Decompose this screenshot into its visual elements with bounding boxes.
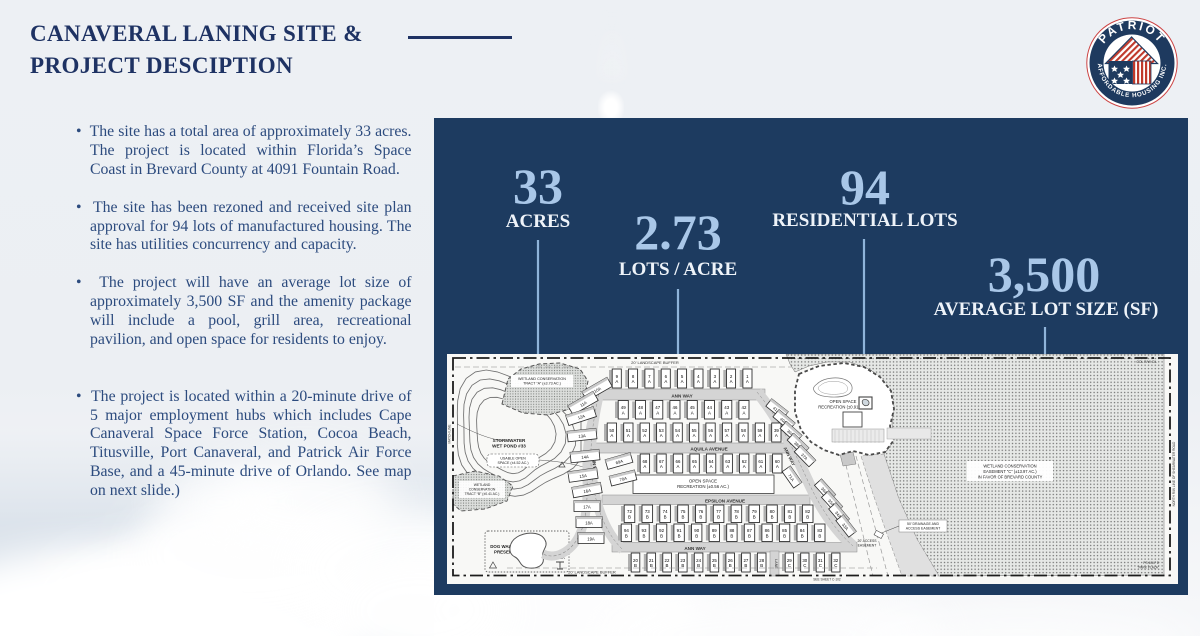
svg-text:B: B: [760, 563, 763, 568]
svg-text:B: B: [713, 533, 716, 538]
svg-text:TRACT “A” (±3.73 AC.): TRACT “A” (±3.73 AC.): [523, 382, 561, 386]
svg-text:B: B: [678, 533, 681, 538]
svg-text:B: B: [699, 514, 702, 519]
svg-text:A: A: [713, 379, 716, 384]
svg-text:C: C: [803, 563, 806, 568]
svg-text:A: A: [648, 379, 651, 384]
svg-text:A: A: [674, 410, 677, 415]
svg-text:45: 45: [690, 405, 695, 410]
svg-text:13A: 13A: [578, 433, 586, 439]
svg-text:A: A: [691, 410, 694, 415]
svg-text:ANN WAY: ANN WAY: [684, 546, 705, 551]
svg-text:B: B: [666, 563, 669, 568]
svg-text:WET POND #33: WET POND #33: [492, 444, 526, 449]
svg-text:A: A: [693, 433, 696, 438]
svg-text:EASEMENT “C” (±13.97 AC.): EASEMENT “C” (±13.97 AC.): [983, 469, 1037, 474]
svg-text:48: 48: [638, 405, 643, 410]
svg-text:MATCH LINE: MATCH LINE: [448, 424, 452, 443]
svg-text:B: B: [660, 533, 663, 538]
svg-text:A: A: [681, 379, 684, 384]
svg-text:20’ LANDSCAPE BUFFER: 20’ LANDSCAPE BUFFER: [631, 360, 679, 365]
svg-text:C: C: [788, 563, 791, 568]
svg-text:B: B: [682, 514, 685, 519]
svg-text:19A: 19A: [587, 537, 595, 542]
svg-text:49: 49: [621, 405, 626, 410]
svg-text:A: A: [664, 379, 667, 384]
svg-text:44: 44: [707, 405, 712, 410]
svg-text:NORTH R/W LINE OF SHEARWATER R: NORTH R/W LINE OF SHEARWATER ROAD: [1172, 441, 1176, 506]
svg-text:B: B: [771, 514, 774, 519]
svg-text:50’ DRAINAGE AND: 50’ DRAINAGE AND: [907, 522, 939, 526]
svg-text:A: A: [660, 433, 663, 438]
svg-text:OPEN SPACE: OPEN SPACE: [689, 479, 717, 484]
svg-text:A: A: [632, 379, 635, 384]
svg-text:15A: 15A: [579, 473, 587, 479]
svg-text:A: A: [710, 464, 713, 469]
svg-text:B: B: [643, 533, 646, 538]
svg-text:A: A: [759, 464, 762, 469]
svg-text:SPACE (±4.52 AC.): SPACE (±4.52 AC.): [497, 461, 528, 465]
svg-text:A: A: [697, 379, 700, 384]
svg-text:20’ LANDSCAPE BUFFER: 20’ LANDSCAPE BUFFER: [568, 570, 616, 575]
svg-text:A: A: [627, 433, 630, 438]
svg-text:A: A: [743, 410, 746, 415]
svg-text:B: B: [766, 533, 769, 538]
svg-text:A: A: [730, 379, 733, 384]
svg-text:“PARK PLAZA”: “PARK PLAZA”: [1137, 566, 1159, 570]
svg-text:A: A: [776, 464, 779, 469]
svg-text:A: A: [775, 433, 778, 438]
svg-text:USABLE OPEN: USABLE OPEN: [500, 457, 526, 461]
svg-text:A: A: [726, 464, 729, 469]
svg-text:B: B: [717, 514, 720, 519]
svg-text:A: A: [639, 410, 642, 415]
svg-text:ANN WAY: ANN WAY: [671, 394, 692, 399]
svg-text:OPEN SPACE: OPEN SPACE: [830, 399, 857, 404]
svg-text:STORMWATER: STORMWATER: [493, 438, 526, 443]
svg-text:B: B: [697, 563, 700, 568]
svg-text:A: A: [622, 410, 625, 415]
svg-text:17A: 17A: [583, 505, 591, 510]
svg-text:A: A: [746, 379, 749, 384]
svg-text:A: A: [660, 464, 663, 469]
svg-text:B: B: [753, 514, 756, 519]
svg-text:ACCESS EASEMENT: ACCESS EASEMENT: [906, 527, 941, 531]
svg-text:B: B: [634, 563, 637, 568]
svg-text:A: A: [708, 410, 711, 415]
svg-text:C: C: [834, 563, 837, 568]
svg-text:B: B: [695, 533, 698, 538]
svg-text:B: B: [748, 533, 751, 538]
svg-text:B: B: [646, 514, 649, 519]
svg-text:B: B: [801, 533, 804, 538]
svg-text:A: A: [656, 410, 659, 415]
svg-text:B: B: [628, 514, 631, 519]
svg-text:A: A: [643, 464, 646, 469]
svg-text:B: B: [664, 514, 667, 519]
svg-text:RECREATION (±0.56 AC.): RECREATION (±0.56 AC.): [677, 484, 729, 489]
svg-text:20’ ACCESS: 20’ ACCESS: [857, 539, 877, 543]
svg-text:C: C: [819, 563, 822, 568]
svg-text:SEE SHEET C-102: SEE SHEET C-102: [813, 578, 841, 582]
svg-text:B: B: [744, 563, 747, 568]
svg-text:A: A: [758, 433, 761, 438]
svg-text:A: A: [725, 410, 728, 415]
svg-text:A: A: [615, 379, 618, 384]
svg-text:A: A: [743, 464, 746, 469]
svg-text:A: A: [726, 433, 729, 438]
svg-text:A: A: [677, 464, 680, 469]
svg-text:CONSERVATION: CONSERVATION: [469, 488, 496, 492]
svg-text:B: B: [783, 533, 786, 538]
svg-text:B: B: [650, 563, 653, 568]
svg-text:47: 47: [655, 405, 660, 410]
svg-text:COL R/W C/L: COL R/W C/L: [1136, 360, 1157, 364]
svg-text:18A: 18A: [585, 521, 593, 526]
svg-text:WETLAND: WETLAND: [474, 483, 491, 487]
svg-text:A: A: [742, 433, 745, 438]
svg-text:B: B: [625, 533, 628, 538]
svg-text:B: B: [806, 514, 809, 519]
svg-text:B: B: [788, 514, 791, 519]
svg-text:A: A: [610, 433, 613, 438]
svg-text:B: B: [729, 563, 732, 568]
svg-text:PS 4/54° E: PS 4/54° E: [1143, 561, 1159, 565]
svg-text:B: B: [818, 533, 821, 538]
svg-text:B: B: [735, 514, 738, 519]
svg-text:A: A: [643, 433, 646, 438]
svg-text:42: 42: [742, 405, 747, 410]
svg-text:43: 43: [724, 405, 729, 410]
svg-text:EPSILON AVENUE: EPSILON AVENUE: [705, 499, 745, 504]
svg-text:B: B: [681, 563, 684, 568]
svg-text:TRACT “B” (±0.41 AC.): TRACT “B” (±0.41 AC.): [465, 492, 500, 496]
svg-text:A: A: [709, 433, 712, 438]
svg-text:B: B: [713, 563, 716, 568]
svg-text:14A: 14A: [581, 454, 589, 460]
svg-text:EASEMENT: EASEMENT: [858, 544, 877, 548]
svg-text:AQUILA AVENUE: AQUILA AVENUE: [690, 447, 727, 452]
svg-text:A: A: [693, 464, 696, 469]
svg-text:46: 46: [673, 405, 678, 410]
svg-text:A: A: [676, 433, 679, 438]
svg-text:WETLAND CONSERVATION: WETLAND CONSERVATION: [983, 464, 1036, 469]
svg-text:B: B: [730, 533, 733, 538]
svg-text:IN FAVOR OF BREVARD COUNTY: IN FAVOR OF BREVARD COUNTY: [978, 475, 1043, 480]
svg-text:WETLAND CONSERVATION: WETLAND CONSERVATION: [518, 377, 566, 381]
